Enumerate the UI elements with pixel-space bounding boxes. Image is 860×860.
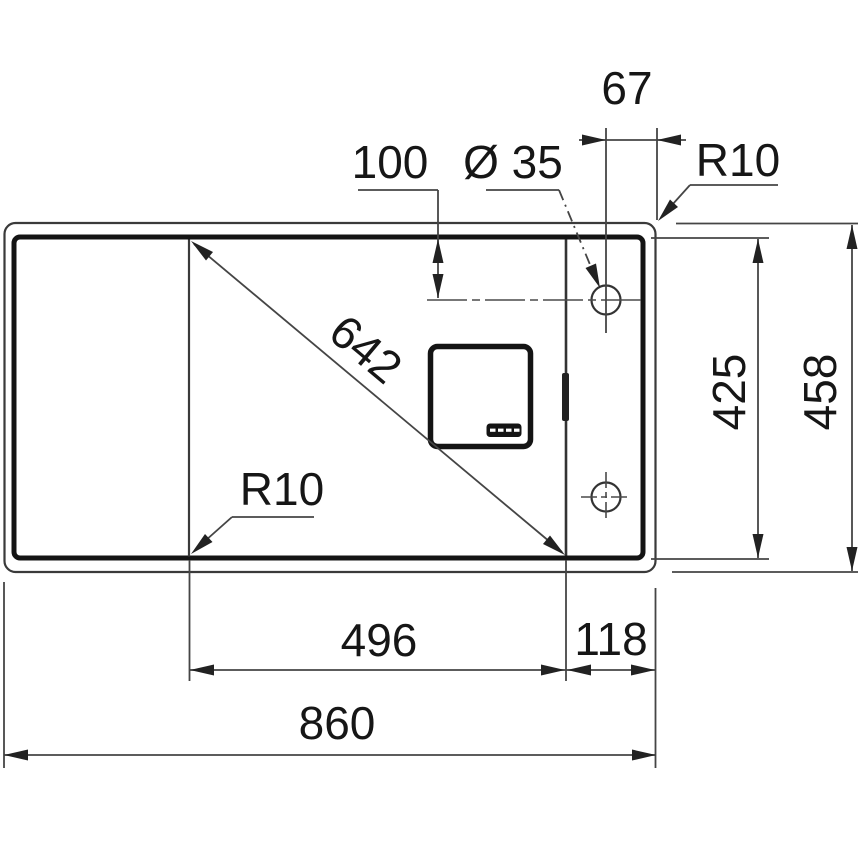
label-r10-outer: R10 bbox=[658, 134, 780, 221]
r10-outer-label: R10 bbox=[696, 134, 780, 186]
dim-425: 425 bbox=[651, 238, 769, 559]
grate-slot bbox=[498, 429, 504, 432]
dim-118-arrow-left bbox=[567, 665, 591, 676]
dim-496-arrow-left bbox=[190, 665, 214, 676]
dim-458: 458 bbox=[672, 224, 858, 573]
grate-slot bbox=[514, 429, 520, 432]
r10-bowl-label: R10 bbox=[240, 463, 324, 515]
dim-425-label: 425 bbox=[703, 354, 755, 431]
dim-67-label: 67 bbox=[601, 62, 652, 114]
dim-67-arrow-right bbox=[657, 135, 681, 146]
dim-860-arrow-right bbox=[632, 750, 656, 761]
dim-458-label: 458 bbox=[794, 354, 846, 431]
waste-box-grate bbox=[487, 424, 522, 438]
grate-slot bbox=[490, 429, 496, 432]
dim-496-arrow-right bbox=[541, 665, 565, 676]
dim-67-arrow-left bbox=[582, 135, 606, 146]
dim-458-arrow-down bbox=[847, 547, 858, 571]
dim-425-arrow-down bbox=[753, 534, 764, 558]
dim-100-label: 100 bbox=[352, 136, 429, 188]
dim-860: 860 bbox=[4, 582, 656, 768]
dia-35-label: Ø 35 bbox=[463, 136, 563, 188]
dim-458-arrow-up bbox=[847, 225, 858, 249]
dim-118-label: 118 bbox=[574, 613, 647, 665]
dim-496-label: 496 bbox=[341, 614, 418, 666]
dim-860-label: 860 bbox=[299, 697, 376, 749]
technical-drawing-canvas: 67 100 Ø 35 R10 R10 642 bbox=[0, 0, 860, 860]
dim-860-arrow-left bbox=[4, 750, 28, 761]
overflow-notch bbox=[562, 373, 569, 421]
sink-dimension-drawing: 67 100 Ø 35 R10 R10 642 bbox=[0, 0, 860, 860]
dim-118-arrow-right bbox=[631, 665, 655, 676]
grate-slot bbox=[506, 429, 512, 432]
dim-496-118: 496 118 bbox=[190, 560, 657, 768]
sink-body bbox=[5, 223, 656, 572]
sink-outer-rim-outline bbox=[5, 223, 656, 572]
dim-425-arrow-up bbox=[753, 239, 764, 263]
